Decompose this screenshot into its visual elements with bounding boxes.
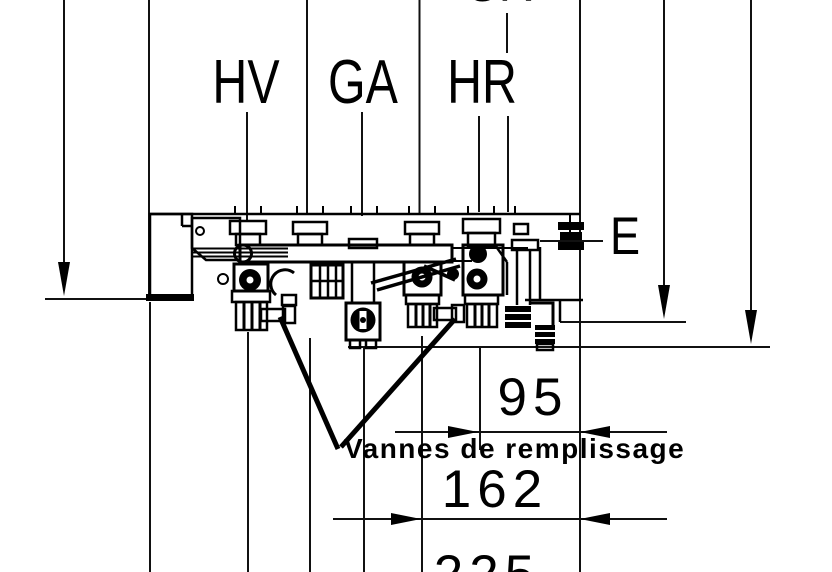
label-ga: GA: [301, 52, 426, 114]
valve-manifold: [192, 218, 584, 350]
label-hv: HV: [184, 52, 309, 114]
dimension-arrows: [58, 262, 757, 525]
label-hr: HR: [420, 52, 545, 114]
annotation-leader-lines: [280, 317, 455, 449]
label-leader-lines: [247, 13, 603, 241]
elbow-and-flange: [271, 265, 343, 305]
dimension-162: 162: [420, 462, 570, 518]
gas-connection: [346, 262, 380, 348]
valve-hr: [463, 245, 507, 327]
dimension-225: 225: [412, 547, 562, 572]
filling-valve-right: [434, 305, 464, 322]
annotation-filling-valves: Vannes de remplissage: [344, 433, 685, 465]
dimension-95: 95: [458, 370, 608, 426]
technical-drawing-page: HV GA HR SR E 95 162 225 Vannes de rempl…: [0, 0, 832, 572]
label-e: E: [591, 210, 659, 263]
label-sr-partial: SR: [438, 0, 563, 12]
